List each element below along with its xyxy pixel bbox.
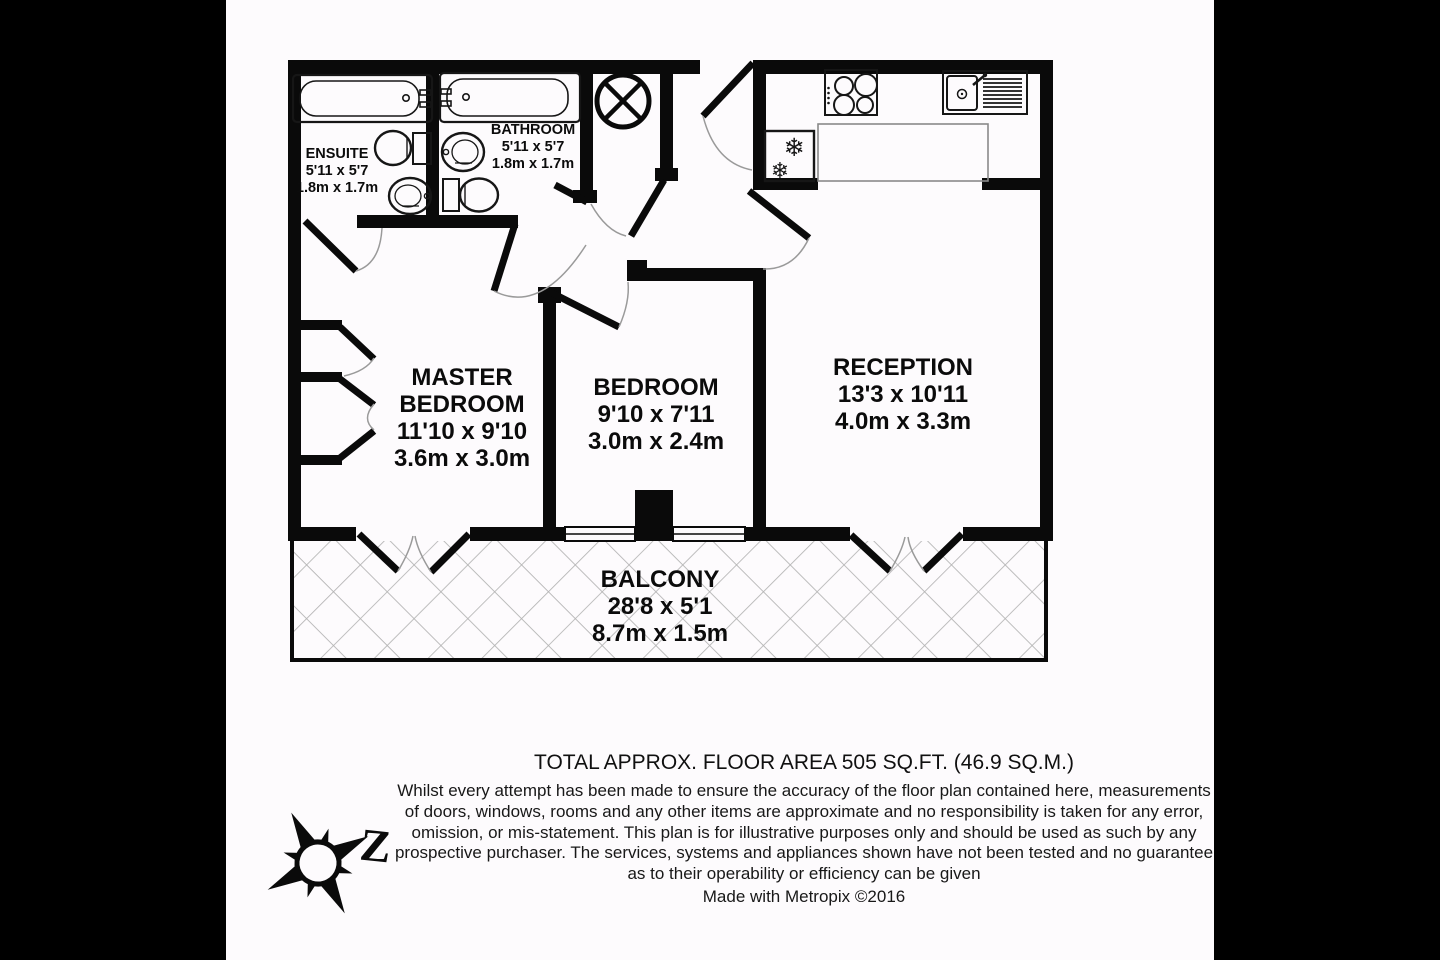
wall (1040, 60, 1053, 541)
doors (305, 63, 962, 572)
storage-circle-icon (597, 75, 649, 127)
room-name: BALCONY (592, 566, 728, 593)
room-dims-imperial: 28'8 x 5'1 (592, 593, 728, 620)
disclaimer-line: omission, or mis-statement. This plan is… (226, 823, 1214, 844)
room-label-balcony: BALCONY 28'8 x 5'1 8.7m x 1.5m (592, 566, 728, 647)
room-name: ENSUITE (296, 146, 378, 163)
snowflake-icon: ❄ (784, 133, 805, 162)
room-name: BEDROOM (588, 374, 724, 401)
door-leaf (631, 180, 664, 236)
wall (982, 178, 1040, 190)
bathtub-icon (293, 75, 432, 122)
bathtub-icon (440, 73, 580, 122)
balcony-edge-right (1044, 541, 1048, 662)
room-dims-metric: 3.6m x 3.0m (394, 445, 530, 472)
basin-icon (389, 178, 431, 214)
wardrobe-icon (293, 320, 374, 465)
room-dims-metric: 1.8m x 1.7m (296, 180, 378, 197)
kitchen-counter (818, 124, 988, 181)
total-area-title: TOTAL APPROX. FLOOR AREA 505 SQ.FT. (46.… (226, 750, 1214, 776)
hob-icon (825, 70, 877, 115)
room-label-reception: RECEPTION 13'3 x 10'11 4.0m x 3.3m (833, 354, 973, 435)
wall (627, 268, 757, 281)
room-dims-imperial: 5'11 x 5'7 (491, 139, 575, 156)
room-dims-imperial: 13'3 x 10'11 (833, 381, 973, 408)
room-dims-imperial: 5'11 x 5'7 (296, 163, 378, 180)
room-dims-metric: 8.7m x 1.5m (592, 620, 728, 647)
disclaimer-line: Whilst every attempt has been made to en… (226, 781, 1214, 802)
room-dims-metric: 1.8m x 1.7m (491, 156, 575, 173)
door-leaf (703, 63, 753, 116)
room-dims-metric: 4.0m x 3.3m (833, 408, 973, 435)
room-label-master-bedroom: MASTER BEDROOM 11'10 x 9'10 3.6m x 3.0m (394, 364, 530, 472)
snowflake-icon: ❄ (771, 159, 789, 184)
toilet-icon (375, 131, 431, 165)
wall (753, 268, 766, 541)
room-name: BEDROOM (394, 391, 530, 418)
basin-icon (442, 133, 484, 171)
wall (580, 60, 593, 197)
wall (288, 60, 301, 541)
room-dims-imperial: 9'10 x 7'11 (588, 401, 724, 428)
balcony-edge-left (290, 541, 294, 662)
wall (543, 287, 556, 541)
floorplan-page: ❄ ❄ (226, 0, 1214, 960)
disclaimer-line: of doors, windows, rooms and any other i… (226, 802, 1214, 823)
room-dims-imperial: 11'10 x 9'10 (394, 418, 530, 445)
balcony-edge-bottom (290, 658, 1048, 662)
door-leaf (494, 224, 515, 291)
wall (655, 168, 678, 181)
room-dims-metric: 3.0m x 2.4m (588, 428, 724, 455)
pillarboxed-canvas: ❄ ❄ (0, 0, 1440, 960)
wall (660, 60, 673, 178)
room-name: BATHROOM (491, 122, 575, 139)
room-name: MASTER (394, 364, 530, 391)
wall (963, 527, 1053, 541)
door-leaf (749, 191, 809, 238)
room-name: RECEPTION (833, 354, 973, 381)
structural-pillar (635, 490, 673, 541)
door-leaf (550, 292, 619, 327)
room-label-bedroom: BEDROOM 9'10 x 7'11 3.0m x 2.4m (588, 374, 724, 455)
wall (439, 215, 518, 228)
sink-drainer-icon (943, 71, 1027, 114)
disclaimer-line: prospective purchaser. The services, sys… (226, 843, 1214, 864)
room-label-ensuite: ENSUITE 5'11 x 5'7 1.8m x 1.7m (296, 146, 378, 197)
room-label-bathroom: BATHROOM 5'11 x 5'7 1.8m x 1.7m (491, 122, 575, 173)
disclaimer-line: as to their operability or efficiency ca… (226, 864, 1214, 885)
toilet-icon (443, 179, 498, 212)
metropix-credit: Made with Metropix ©2016 (226, 886, 1214, 907)
footer-text-block: TOTAL APPROX. FLOOR AREA 505 SQ.FT. (46.… (226, 750, 1214, 907)
door-leaf (305, 221, 356, 271)
wall (357, 215, 439, 228)
wall (288, 527, 356, 541)
fridge-icon: ❄ ❄ (765, 131, 814, 184)
